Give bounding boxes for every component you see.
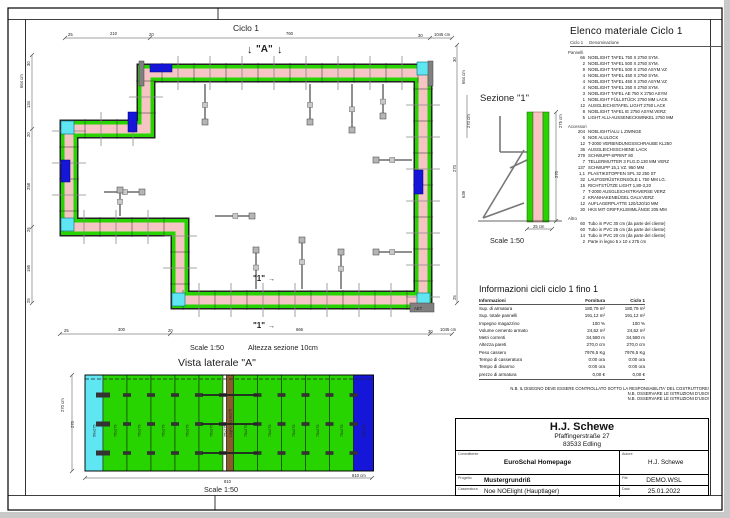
- section-marker-1-upper: "1" →: [253, 274, 275, 283]
- info-row: Tempo di casseratura0:00 ora0:00 ora: [479, 356, 645, 363]
- info-row: Sup. totale pannelli191,12 m²191,12 m²: [479, 312, 645, 319]
- data-label: Data: [622, 487, 630, 491]
- inner-corner-blue: [61, 160, 70, 182]
- info-cell: 0:00 ora: [563, 363, 605, 370]
- svg-text:210: 210: [110, 31, 118, 36]
- svg-text:"1": "1": [253, 321, 265, 330]
- info-cell: Tempo di casseratura: [479, 356, 563, 363]
- svg-text:258: 258: [26, 182, 31, 190]
- nb-note-line: N.B. OSSERVARE LE ISTRUZIONI D'USO!: [478, 397, 709, 402]
- inner-corner-blue: [150, 64, 172, 72]
- progetto-label: Progetto: [458, 476, 472, 480]
- casseratura-label: Casseratura: [458, 487, 478, 491]
- material-name: LIGHT ALU-AUSSENECKWINKEL 2750 MM: [588, 115, 673, 121]
- svg-text:25: 25: [68, 32, 73, 37]
- section-brace: [483, 116, 527, 218]
- svg-text:75x275: 75x275: [114, 425, 118, 437]
- wall-outline: [69, 73, 423, 300]
- info-cell: 24,62 m³: [605, 327, 645, 334]
- cycle-info-panel: Informazioni cicli ciclo 1 fino 1 Inform…: [479, 284, 645, 380]
- svg-text:75x275: 75x275: [244, 425, 248, 437]
- info-cell: 100 %: [563, 320, 605, 327]
- info-cell: Peso cassero: [479, 349, 563, 356]
- svg-text:1045 cm: 1045 cm: [440, 327, 457, 332]
- info-cell: prezzo di armatura: [479, 371, 563, 378]
- file-label: File: [622, 476, 628, 480]
- svg-text:30: 30: [452, 57, 457, 62]
- info-cell: 270,0 cm: [563, 341, 605, 348]
- svg-text:"A": "A": [256, 44, 273, 55]
- cycle-info-rows: Sup. di armatura180,79 m²180,79 m²Sup. t…: [479, 305, 645, 380]
- cycle-info-title: Informazioni cicli ciclo 1 fino 1: [479, 284, 645, 294]
- svg-text:75x275: 75x275: [210, 425, 214, 437]
- lateral-view-title: Vista laterale "A": [178, 357, 256, 369]
- svg-text:75x275: 75x275: [292, 425, 296, 437]
- info-cell: 34,580 m: [563, 334, 605, 341]
- info-cell: Tempo di disarmo: [479, 363, 563, 370]
- info-cell: 0,00 €: [563, 371, 605, 378]
- svg-text:25: 25: [26, 298, 31, 303]
- casseratura-value: Noe NOElight (Hauptlager): [458, 487, 617, 496]
- svg-text:75x275: 75x275: [268, 425, 272, 437]
- info-cell: 100 %: [605, 320, 645, 327]
- section-marker-a: ↓ "A" ↓: [247, 44, 283, 56]
- info-row: Altezza pareti270,0 cm270,0 cm: [479, 341, 645, 348]
- committente-value: EuroSchal Homepage: [458, 452, 617, 473]
- svg-text:Legno 5x10x275: Legno 5x10x275: [229, 409, 233, 437]
- svg-text:75x275: 75x275: [162, 425, 166, 437]
- title-block: H.J. Schewe Pfaffingerstraße 27 83533 Ed…: [455, 418, 709, 496]
- info-cell: 34,580 m: [605, 334, 645, 341]
- corner-pieces: [61, 62, 430, 306]
- svg-text:1045 cm: 1045 cm: [434, 32, 451, 37]
- svg-text:760: 760: [286, 31, 294, 36]
- svg-text:20: 20: [26, 132, 31, 137]
- info-cell: Altezza pareti: [479, 341, 563, 348]
- title-block-company: H.J. Schewe Pfaffingerstraße 27 83533 Ed…: [456, 419, 708, 451]
- progetto-value: Mustergrundriß: [458, 476, 617, 484]
- info-cell: 7976,5 Kg: [563, 349, 605, 356]
- svg-text:810: 810: [224, 479, 232, 484]
- svg-text:639: 639: [461, 190, 466, 198]
- svg-text:300: 300: [118, 327, 126, 332]
- info-cell: 24,62 m³: [563, 327, 605, 334]
- info-cell: 191,12 m²: [563, 312, 605, 319]
- section-title: Sezione "1": [480, 93, 529, 104]
- material-group: Pannelli66NOELIGHT TAFEL 750 X 2750 SYM.…: [570, 50, 722, 121]
- material-name: Parte in legno 5 x 10 x 275 cm: [588, 239, 646, 245]
- progetto-cell: Progetto Mustergrundriß: [456, 475, 620, 485]
- material-item: 30HKS MIT GRIFF,KLEMMLÄNGE 205 MM: [570, 207, 722, 213]
- svg-text:30: 30: [418, 33, 423, 38]
- end-block-label: AET: [414, 306, 423, 311]
- svg-text:75x275: 75x275: [138, 425, 142, 437]
- section-wall: [527, 112, 549, 222]
- company-name: H.J. Schewe: [456, 421, 708, 433]
- material-qty: 30: [570, 207, 585, 213]
- casseratura-cell: Casseratura Noe NOElight (Hauptlager): [456, 486, 620, 497]
- info-cell: Sup. totale pannelli: [479, 312, 563, 319]
- svg-text:75x275: 75x275: [316, 425, 320, 437]
- autore-label: Autore: [622, 452, 633, 456]
- col-fornitura: Fornitura: [563, 298, 605, 303]
- outer-corner-cyan: [172, 293, 185, 306]
- material-list-col-name: Denominazione: [589, 40, 619, 45]
- section-panel-left: [527, 112, 533, 222]
- drawing-sheet: Ciclo 1: [0, 0, 730, 518]
- info-cell: 270,0 cm: [605, 341, 645, 348]
- info-cell: 7976,5 Kg: [605, 349, 645, 356]
- company-address2: 83533 Edling: [456, 441, 708, 449]
- page-edge-bottom: [0, 512, 730, 518]
- material-list-col-cycle: Ciclo 1: [570, 40, 583, 45]
- svg-text:666: 666: [296, 327, 304, 332]
- svg-text:20: 20: [168, 328, 173, 333]
- info-row: Impegno magazzino100 %100 %: [479, 320, 645, 327]
- svg-text:↓: ↓: [247, 44, 253, 56]
- material-group: Altro60Tubo in PVC 30 cm (da parte del c…: [570, 216, 722, 245]
- svg-text:270 cm: 270 cm: [466, 114, 471, 128]
- svg-text:↓: ↓: [277, 44, 283, 56]
- svg-text:30: 30: [26, 61, 31, 66]
- material-qty: 5: [570, 115, 585, 121]
- info-row: prezzo di armatura0,00 €0,00 €: [479, 371, 645, 378]
- col-ciclo1: Ciclo 1: [605, 298, 645, 303]
- section-scale: Scale 1:50: [490, 236, 524, 245]
- file-cell: File DEMO.WSL: [620, 475, 708, 485]
- material-list-groups: Pannelli66NOELIGHT TAFEL 750 X 2750 SYM.…: [570, 50, 722, 245]
- wall-concrete: [69, 73, 423, 300]
- info-cell: Metri correnti: [479, 334, 563, 341]
- section-panel-right: [543, 112, 549, 222]
- svg-text:270 cm: 270 cm: [60, 398, 65, 412]
- info-cell: Sup. di armatura: [479, 305, 563, 312]
- info-cell: Impegno magazzino: [479, 320, 563, 327]
- section-view: Sezione "1" 275 cm27025 cm Scale 1:: [478, 93, 563, 245]
- info-cell: 191,12 m²: [605, 312, 645, 319]
- info-cell: 0,00 €: [605, 371, 645, 378]
- svg-text:50x275: 50x275: [93, 425, 97, 437]
- svg-text:25: 25: [452, 295, 457, 300]
- panel-joint-ticks: [52, 56, 440, 317]
- material-list-title: Elenco materiale Ciclo 1: [570, 26, 722, 37]
- svg-text:195: 195: [26, 264, 31, 272]
- company-address1: Pfaffingerstraße 27: [456, 433, 708, 441]
- autore-value: H.J. Schewe: [622, 452, 706, 473]
- wall-formwork-panels: [69, 73, 423, 300]
- plan-scale-note: Scale 1:50: [190, 343, 224, 352]
- material-item: 5LIGHT ALU-AUSSENECKWINKEL 2750 MM: [570, 115, 722, 121]
- col-informazioni: Informazioni: [479, 298, 563, 303]
- inner-corner-blue: [414, 170, 423, 194]
- info-cell: 180,79 m²: [605, 305, 645, 312]
- svg-text:810 cm: 810 cm: [352, 473, 366, 478]
- info-cell: 0:00 ora: [605, 356, 645, 363]
- svg-text:→: →: [268, 276, 275, 283]
- svg-text:270: 270: [554, 170, 559, 178]
- svg-text:270: 270: [452, 164, 457, 172]
- material-list-panel: Elenco materiale Ciclo 1 Ciclo 1 Denomin…: [570, 26, 722, 245]
- sheet-cycle-label: Ciclo 1: [233, 23, 259, 33]
- file-value: DEMO.WSL: [622, 476, 706, 484]
- svg-text:134: 134: [26, 100, 31, 108]
- svg-text:25: 25: [64, 328, 69, 333]
- info-row: Volume cemento armato24,62 m³24,62 m³: [479, 327, 645, 334]
- material-group: Accessori204NOELIGHT/ALU L ZWINGE6NOE AL…: [570, 124, 722, 213]
- svg-text:"1": "1": [253, 274, 265, 283]
- info-cell: 0:00 ora: [563, 356, 605, 363]
- info-row: Sup. di armatura180,79 m²180,79 m²: [479, 305, 645, 312]
- svg-text:664 cm: 664 cm: [461, 70, 466, 84]
- committente-cell: Committente EuroSchal Homepage: [456, 451, 620, 474]
- svg-text:270: 270: [70, 420, 75, 428]
- plan-view: AET ↓ "A" ↓ "1" → "1" →: [19, 31, 471, 352]
- svg-text:75x275: 75x275: [186, 425, 190, 437]
- material-name: HKS MIT GRIFF,KLEMMLÄNGE 205 MM: [588, 207, 667, 213]
- svg-text:→: →: [268, 323, 275, 330]
- data-value: 25.01.2022: [622, 487, 706, 496]
- autore-cell: Autore H.J. Schewe: [620, 451, 708, 474]
- committente-label: Committente: [458, 452, 478, 456]
- info-cell: 180,79 m²: [563, 305, 605, 312]
- nb-notes: N.B. IL DISEGNO DEVE ESSERE CONTROLLATO …: [478, 387, 709, 401]
- lateral-view: Vista laterale "A" 50x27575x27575x27575x…: [60, 357, 374, 494]
- section-concrete: [533, 112, 543, 222]
- lateral-scale: Scale 1:50: [204, 485, 238, 494]
- svg-text:26: 26: [26, 227, 31, 232]
- info-row: Peso cassero7976,5 Kg7976,5 Kg: [479, 349, 645, 356]
- page-edge-right: [724, 0, 730, 518]
- cycle-info-header: Informazioni Fornitura Ciclo 1: [479, 298, 645, 305]
- svg-text:25 cm: 25 cm: [533, 224, 545, 229]
- outer-corner-cyan: [61, 121, 74, 134]
- material-item: 2Parte in legno 5 x 10 x 275 cm: [570, 239, 722, 245]
- data-cell: Data 25.01.2022: [620, 486, 708, 497]
- svg-text:45x275: 45x275: [362, 425, 366, 437]
- outer-corner-cyan: [61, 218, 74, 231]
- svg-text:75x275: 75x275: [340, 425, 344, 437]
- info-cell: 0:00 ora: [605, 363, 645, 370]
- plan-section-height-note: Altezza sezione 10cm: [248, 343, 318, 352]
- inner-corner-blue: [128, 112, 137, 132]
- info-row: Metri correnti34,580 m34,580 m: [479, 334, 645, 341]
- svg-text:275 cm: 275 cm: [558, 114, 563, 128]
- material-list-header: Ciclo 1 Denominazione: [570, 40, 722, 47]
- material-qty: 2: [570, 239, 585, 245]
- info-row: Tempo di disarmo0:00 ora0:00 ora: [479, 363, 645, 370]
- lateral-panels: 50x27575x27575x27575x27575x27575x27525x2…: [85, 375, 374, 471]
- info-cell: Volume cemento armato: [479, 327, 563, 334]
- section-marker-1-lower: "1" →: [253, 321, 275, 330]
- svg-text:664 cm: 664 cm: [19, 74, 24, 88]
